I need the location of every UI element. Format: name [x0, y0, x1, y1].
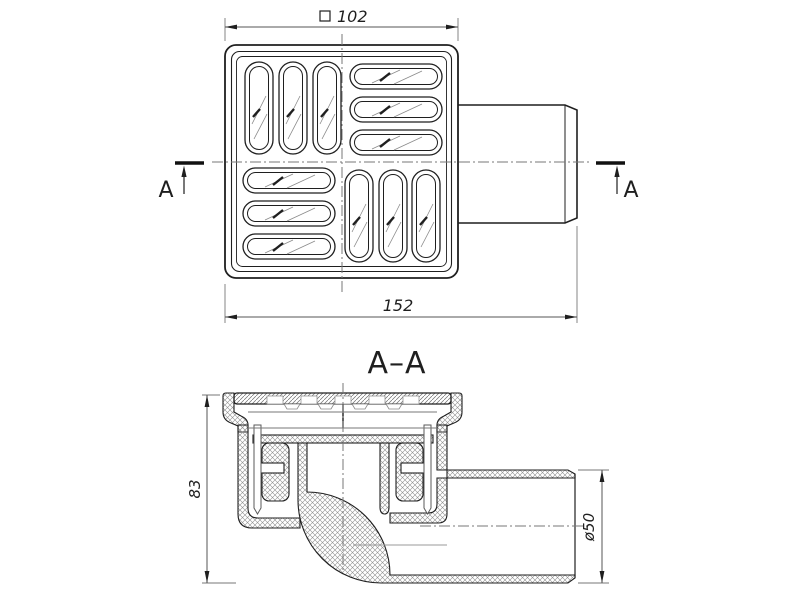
clip-right [401, 463, 425, 473]
grate-slot [379, 170, 407, 262]
grate-slot [243, 201, 335, 226]
grate-slot [345, 170, 373, 262]
dimension-outlet-diameter-50: ø50 [578, 470, 609, 583]
rib-left [254, 425, 261, 514]
dim-total-length-value: 152 [383, 296, 414, 315]
grate-slot [243, 234, 335, 259]
section-view: 83 ø50 [186, 383, 609, 583]
dim-outlet-diameter-value: ø50 [580, 513, 598, 542]
top-view: 102 152 A A [158, 7, 638, 323]
dimension-body-height-83: 83 [186, 395, 236, 583]
clip-left [260, 463, 284, 473]
outlet-pipe-top-view [458, 105, 577, 223]
dim-grate-width-value: 102 [337, 7, 368, 26]
trap-insert-section [253, 435, 575, 583]
rib-right [424, 425, 431, 514]
section-cut-mark-left: A [158, 163, 204, 203]
section-cut-label-right: A [623, 178, 638, 203]
section-view-title: A–A [367, 346, 426, 381]
technical-drawing-canvas: 102 152 A A A–A [0, 0, 800, 600]
right-wall-upper [437, 425, 447, 470]
section-cut-label-left: A [158, 178, 173, 203]
technical-drawing-page: 102 152 A A A–A [0, 0, 800, 600]
outlet-pipe-top-wall [447, 470, 575, 478]
trap-tube-right-wall [380, 443, 389, 514]
grate-slot [412, 170, 440, 262]
grate-slot [350, 64, 442, 89]
grate-slot [279, 62, 307, 154]
square-symbol [320, 11, 330, 21]
grate-slot [350, 130, 442, 155]
grate-slot [350, 97, 442, 122]
section-cut-mark-right: A [596, 163, 639, 203]
grate-slot [313, 62, 341, 154]
grate-slot [243, 168, 335, 193]
grate-slot [245, 62, 273, 154]
dim-body-height-value: 83 [186, 479, 204, 498]
